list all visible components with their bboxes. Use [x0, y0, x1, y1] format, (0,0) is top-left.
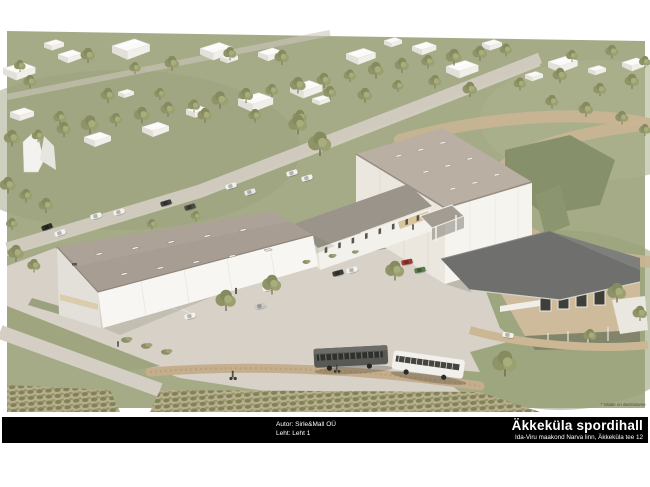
project-address: Ida-Viru maakond Narva linn, Äkkeküla te… — [512, 434, 643, 441]
project-block: Äkkeküla spordihall Ida-Viru maakond Nar… — [512, 418, 643, 441]
author-block: Autor: Sirle&Mall OÜ Leht: Leht 1 — [276, 421, 336, 438]
disclaimer-note: * Vaade on illustratiivne — [601, 403, 646, 407]
drawing-sheet: * Vaade on illustratiivne Autor: Sirle&M… — [0, 0, 650, 487]
author-line: Autor: Sirle&Mall OÜ — [276, 421, 336, 430]
sheet-number-line: Leht: Leht 1 — [276, 430, 336, 439]
architectural-render — [0, 0, 650, 412]
dark-bus — [313, 345, 392, 376]
title-bar: Autor: Sirle&Mall OÜ Leht: Leht 1 Äkkekü… — [2, 417, 648, 443]
project-title: Äkkeküla spordihall — [512, 418, 643, 433]
facade-sign — [72, 263, 77, 266]
